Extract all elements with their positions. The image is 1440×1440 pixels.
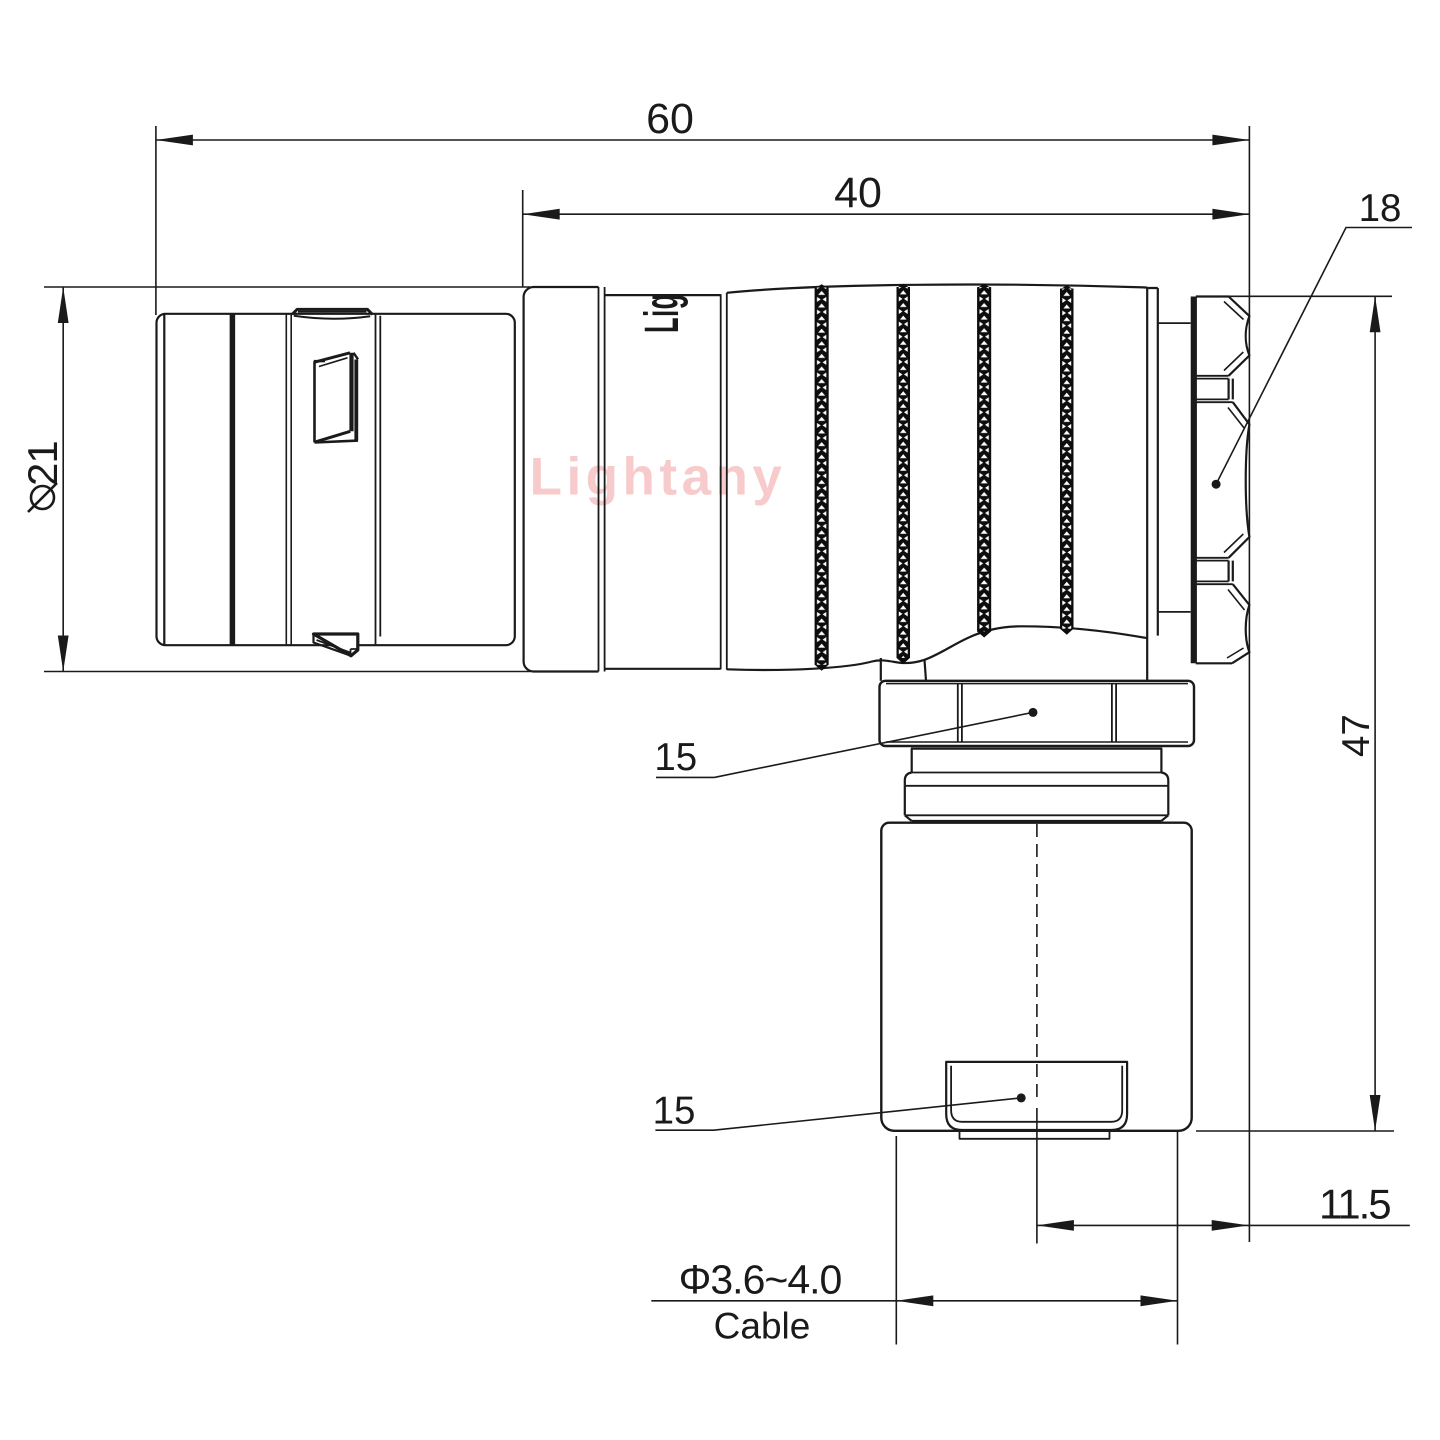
svg-text:47: 47 xyxy=(1335,714,1378,757)
svg-text:15: 15 xyxy=(653,1090,696,1133)
svg-text:Lightany: Lightany xyxy=(530,448,787,507)
svg-text:21: 21 xyxy=(19,441,66,486)
svg-text:18: 18 xyxy=(1359,187,1402,230)
svg-text:Lig: Lig xyxy=(636,293,690,333)
svg-text:Φ3.6~4.0: Φ3.6~4.0 xyxy=(679,1257,842,1303)
svg-text:11.5: 11.5 xyxy=(1319,1181,1390,1228)
svg-text:Cable: Cable xyxy=(714,1306,811,1347)
svg-text:15: 15 xyxy=(654,736,697,779)
svg-text:40: 40 xyxy=(834,169,882,217)
svg-text:60: 60 xyxy=(646,95,694,143)
